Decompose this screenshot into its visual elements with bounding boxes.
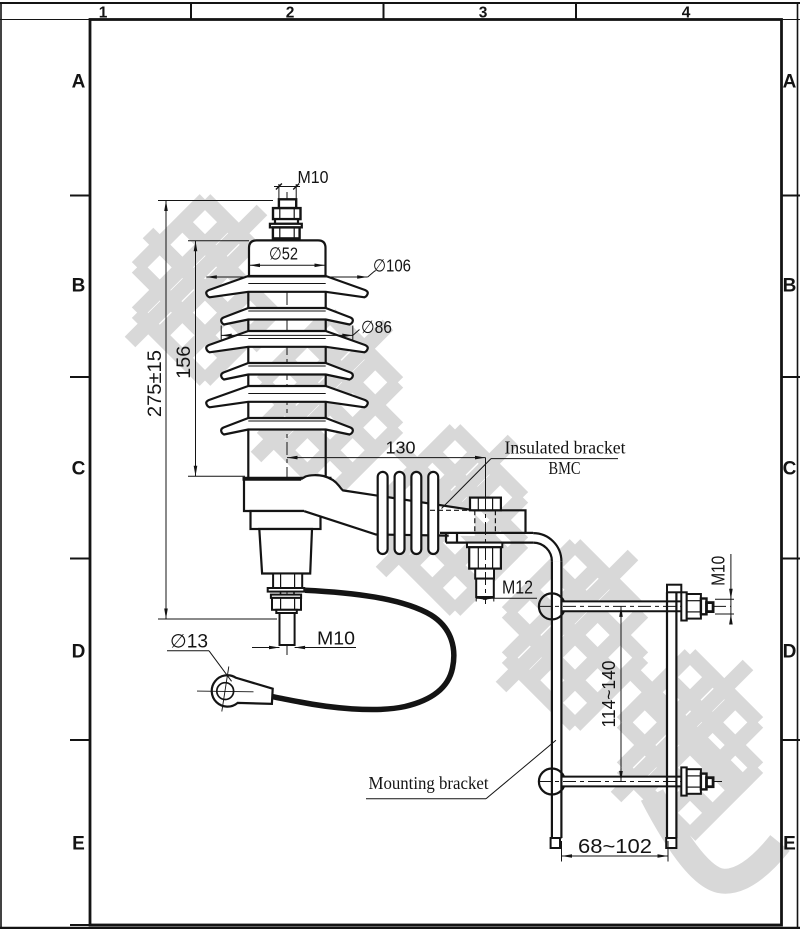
- svg-text:4: 4: [682, 4, 691, 21]
- svg-text:Mounting bracket: Mounting bracket: [369, 773, 489, 793]
- svg-text:C: C: [783, 459, 797, 480]
- svg-text:D: D: [72, 642, 86, 663]
- svg-text:B: B: [783, 276, 797, 297]
- svg-text:M10: M10: [708, 556, 728, 586]
- svg-text:A: A: [72, 72, 86, 93]
- svg-text:114~140: 114~140: [599, 661, 619, 728]
- svg-text:∅13: ∅13: [170, 632, 208, 653]
- svg-text:E: E: [72, 834, 85, 855]
- svg-text:∅86: ∅86: [361, 317, 392, 337]
- svg-text:M10: M10: [317, 628, 355, 649]
- svg-text:A: A: [783, 72, 797, 93]
- svg-text:D: D: [783, 642, 797, 663]
- svg-text:130: 130: [386, 438, 416, 458]
- svg-text:C: C: [72, 459, 86, 480]
- svg-text:M10: M10: [298, 167, 329, 187]
- svg-text:275±15: 275±15: [145, 350, 166, 417]
- svg-text:∅52: ∅52: [269, 244, 298, 264]
- svg-text:∅106: ∅106: [373, 256, 411, 276]
- svg-text:E: E: [783, 834, 796, 855]
- svg-text:156: 156: [174, 346, 195, 379]
- svg-text:B: B: [72, 276, 86, 297]
- svg-text:3: 3: [479, 4, 488, 21]
- svg-text:1: 1: [99, 4, 108, 21]
- svg-text:68~102: 68~102: [578, 836, 652, 858]
- svg-text:2: 2: [286, 4, 295, 21]
- svg-text:M12: M12: [502, 578, 533, 598]
- svg-text:Insulated bracket: Insulated bracket: [505, 438, 626, 458]
- svg-text:BMC: BMC: [549, 458, 581, 478]
